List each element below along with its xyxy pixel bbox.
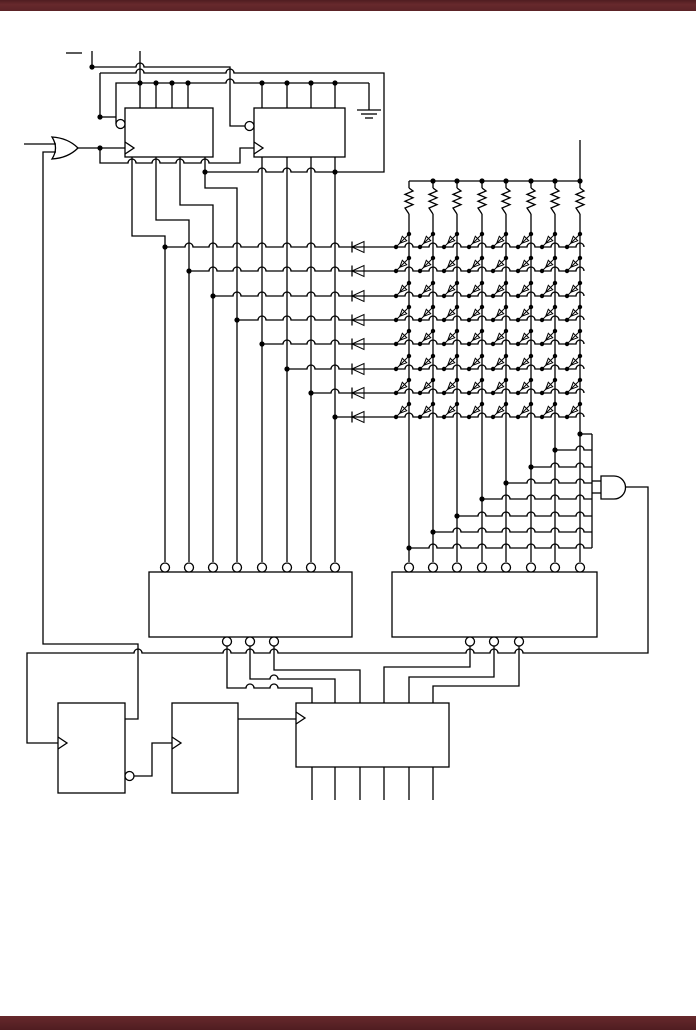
wire <box>578 378 582 382</box>
wire <box>578 232 582 236</box>
wire <box>479 178 484 183</box>
sel-left-1 <box>227 646 312 703</box>
wire <box>394 269 398 273</box>
resistor-icon <box>502 188 510 214</box>
wire <box>431 354 435 358</box>
wire <box>431 329 435 333</box>
wire <box>578 354 582 358</box>
wire <box>407 232 411 236</box>
wire <box>418 318 422 322</box>
wire <box>480 402 484 406</box>
wire <box>516 391 520 395</box>
wire <box>552 447 557 452</box>
flipflop-2 <box>172 703 238 793</box>
wire <box>479 496 484 501</box>
decoder-left <box>149 572 352 637</box>
wire <box>259 341 264 346</box>
wire <box>394 318 398 322</box>
wire <box>467 269 471 273</box>
sel-left-3 <box>274 646 360 703</box>
and-tap <box>482 495 592 499</box>
wire <box>503 178 508 183</box>
wire <box>467 294 471 298</box>
row-line <box>189 267 584 271</box>
decoder-left-select-bubble <box>246 637 255 646</box>
decoder-left-input-bubble <box>307 563 316 572</box>
and-tap <box>506 479 592 483</box>
wire <box>407 378 411 382</box>
wire <box>565 367 569 371</box>
wire <box>565 269 569 273</box>
wire <box>516 367 520 371</box>
wire <box>529 281 533 285</box>
wire <box>418 269 422 273</box>
wire <box>578 329 582 333</box>
wire <box>442 367 446 371</box>
wire <box>442 294 446 298</box>
resistor-icon <box>478 188 486 214</box>
wire <box>418 415 422 419</box>
decoder-left-input-bubble <box>161 563 170 572</box>
reg1-out-4 <box>205 157 237 562</box>
wire <box>516 318 520 322</box>
wire <box>516 245 520 249</box>
wire <box>565 391 569 395</box>
decoder-left-input-bubble <box>258 563 267 572</box>
wire <box>467 245 471 249</box>
wire <box>418 342 422 346</box>
wire <box>137 80 142 85</box>
wire <box>516 342 520 346</box>
wire <box>97 114 102 119</box>
wire <box>185 80 190 85</box>
row-line <box>287 365 584 369</box>
decoder-left-input-bubble <box>185 563 194 572</box>
wire <box>394 367 398 371</box>
wire <box>455 232 459 236</box>
wire <box>430 529 435 534</box>
wire <box>89 64 94 69</box>
decoder-left-input-bubble <box>233 563 242 572</box>
wire <box>467 415 471 419</box>
wire <box>284 366 289 371</box>
decoder-left-select-bubble <box>270 637 279 646</box>
resistor-icon <box>453 188 461 214</box>
wire <box>516 415 520 419</box>
wire <box>442 415 446 419</box>
wire <box>540 415 544 419</box>
counter-box <box>296 703 449 767</box>
wire <box>577 431 582 436</box>
wire <box>491 318 495 322</box>
wire <box>565 245 569 249</box>
reg1-out-3 <box>180 157 213 562</box>
decoder-right-input-bubble <box>405 563 414 572</box>
wire <box>480 232 484 236</box>
wire <box>491 415 495 419</box>
flipflop-1-invert-bubble <box>125 772 134 781</box>
wire <box>308 80 313 85</box>
wire <box>516 294 520 298</box>
wire <box>529 232 533 236</box>
wire <box>406 545 411 550</box>
wire <box>442 245 446 249</box>
wire <box>565 415 569 419</box>
wire <box>431 281 435 285</box>
wire <box>480 305 484 309</box>
wire <box>407 281 411 285</box>
wire <box>454 513 459 518</box>
wire <box>442 342 446 346</box>
wire <box>407 354 411 358</box>
wire <box>97 145 102 150</box>
wire <box>528 464 533 469</box>
wire <box>504 281 508 285</box>
wire <box>529 329 533 333</box>
wire <box>491 294 495 298</box>
or-gate <box>52 137 78 159</box>
wire <box>407 329 411 333</box>
wire <box>565 318 569 322</box>
wire <box>504 232 508 236</box>
decoder-right-select-bubble <box>490 637 499 646</box>
wire <box>467 391 471 395</box>
and-gate <box>601 476 626 499</box>
wire <box>455 281 459 285</box>
wire <box>480 281 484 285</box>
wire <box>529 402 533 406</box>
wire <box>169 80 174 85</box>
wire <box>202 169 207 174</box>
decoder-left-select-bubble <box>223 637 232 646</box>
wire <box>553 402 557 406</box>
decoder-right-select-bubble <box>466 637 475 646</box>
wire <box>503 480 508 485</box>
wire <box>504 378 508 382</box>
wire <box>467 342 471 346</box>
wire <box>455 256 459 260</box>
decoder-right-input-bubble <box>429 563 438 572</box>
wire <box>332 414 337 419</box>
wire <box>234 317 239 322</box>
wire <box>259 80 264 85</box>
wire <box>210 293 215 298</box>
wire <box>442 318 446 322</box>
sel-left-2 <box>250 646 335 703</box>
decoder-right <box>392 572 597 637</box>
wire <box>418 367 422 371</box>
wire <box>516 269 520 273</box>
resistor-icon <box>551 188 559 214</box>
wire <box>540 342 544 346</box>
wire <box>431 256 435 260</box>
or-input-2-feedback <box>43 152 138 719</box>
wire <box>418 245 422 249</box>
wire <box>394 415 398 419</box>
wire <box>565 342 569 346</box>
wire <box>455 402 459 406</box>
wire <box>553 256 557 260</box>
wire <box>540 391 544 395</box>
decoder-right-input-bubble <box>502 563 511 572</box>
wire <box>540 269 544 273</box>
wire <box>431 378 435 382</box>
wire <box>553 232 557 236</box>
wire <box>418 294 422 298</box>
and-tap <box>409 544 592 548</box>
wire <box>480 329 484 333</box>
wire <box>504 256 508 260</box>
wire <box>418 391 422 395</box>
wire <box>407 256 411 260</box>
wire <box>504 305 508 309</box>
wire <box>455 305 459 309</box>
wire <box>431 232 435 236</box>
resistor-icon <box>429 188 437 214</box>
row-line <box>237 316 584 320</box>
ff1-out <box>134 743 172 776</box>
wire <box>162 244 167 249</box>
wire <box>529 256 533 260</box>
wire <box>480 354 484 358</box>
wire <box>578 281 582 285</box>
reg1-out-1 <box>132 157 165 562</box>
row-line <box>335 413 584 417</box>
wire <box>553 305 557 309</box>
reg1-out-2 <box>156 157 189 562</box>
wire <box>504 402 508 406</box>
wire <box>394 391 398 395</box>
wire <box>394 245 398 249</box>
circuit-schematic <box>0 0 696 1034</box>
wire <box>407 305 411 309</box>
wire <box>553 329 557 333</box>
and-tap <box>555 446 592 450</box>
decoder-right-input-bubble <box>527 563 536 572</box>
wire <box>442 269 446 273</box>
wire <box>394 294 398 298</box>
wire <box>552 178 557 183</box>
decoder-right-select-bubble <box>515 637 524 646</box>
decoder-right-input-bubble <box>478 563 487 572</box>
wire <box>528 178 533 183</box>
wire <box>407 402 411 406</box>
wire <box>553 281 557 285</box>
wire <box>504 329 508 333</box>
decoder-right-input-bubble <box>453 563 462 572</box>
decoder-right-input-bubble <box>576 563 585 572</box>
wire <box>332 80 337 85</box>
sel-right-2 <box>409 646 494 703</box>
resistor-icon <box>405 188 413 214</box>
sel-right-3 <box>433 646 519 703</box>
wire <box>394 342 398 346</box>
wire <box>577 178 582 183</box>
wire <box>480 378 484 382</box>
decoder-left-input-bubble <box>331 563 340 572</box>
wire <box>442 391 446 395</box>
resistor-icon <box>527 188 535 214</box>
register-2-invert-bubble <box>245 122 254 131</box>
wire <box>491 342 495 346</box>
register-2 <box>254 108 345 157</box>
wire <box>491 367 495 371</box>
wire <box>491 391 495 395</box>
scanned-schematic-page <box>0 0 696 1034</box>
wire <box>540 245 544 249</box>
wire <box>578 402 582 406</box>
wire <box>529 378 533 382</box>
decoder-left-input-bubble <box>283 563 292 572</box>
resistor-icon <box>576 188 584 214</box>
wire <box>491 269 495 273</box>
wire <box>153 80 158 85</box>
wire <box>480 256 484 260</box>
wire <box>540 294 544 298</box>
wire <box>504 354 508 358</box>
wire <box>491 245 495 249</box>
wire <box>308 390 313 395</box>
register-1 <box>125 108 213 157</box>
decoder-left-input-bubble <box>209 563 218 572</box>
wire <box>467 367 471 371</box>
sel-right-1 <box>384 646 470 703</box>
wire <box>430 178 435 183</box>
wire <box>186 268 191 273</box>
wire <box>431 402 435 406</box>
wire <box>553 378 557 382</box>
wire <box>431 305 435 309</box>
wire <box>529 354 533 358</box>
wire <box>540 318 544 322</box>
and-tap <box>457 512 592 516</box>
decoder-right-input-bubble <box>551 563 560 572</box>
wire <box>455 329 459 333</box>
wire <box>529 305 533 309</box>
wire <box>454 178 459 183</box>
wire <box>467 318 471 322</box>
wire <box>455 378 459 382</box>
wire <box>455 354 459 358</box>
flipflop-1 <box>58 703 125 793</box>
wire <box>578 256 582 260</box>
wire <box>553 354 557 358</box>
and-tap <box>531 463 592 467</box>
wire <box>540 367 544 371</box>
wire <box>578 305 582 309</box>
wire <box>565 294 569 298</box>
wire <box>284 80 289 85</box>
wire <box>332 169 337 174</box>
register-1-invert-bubble <box>116 120 125 129</box>
